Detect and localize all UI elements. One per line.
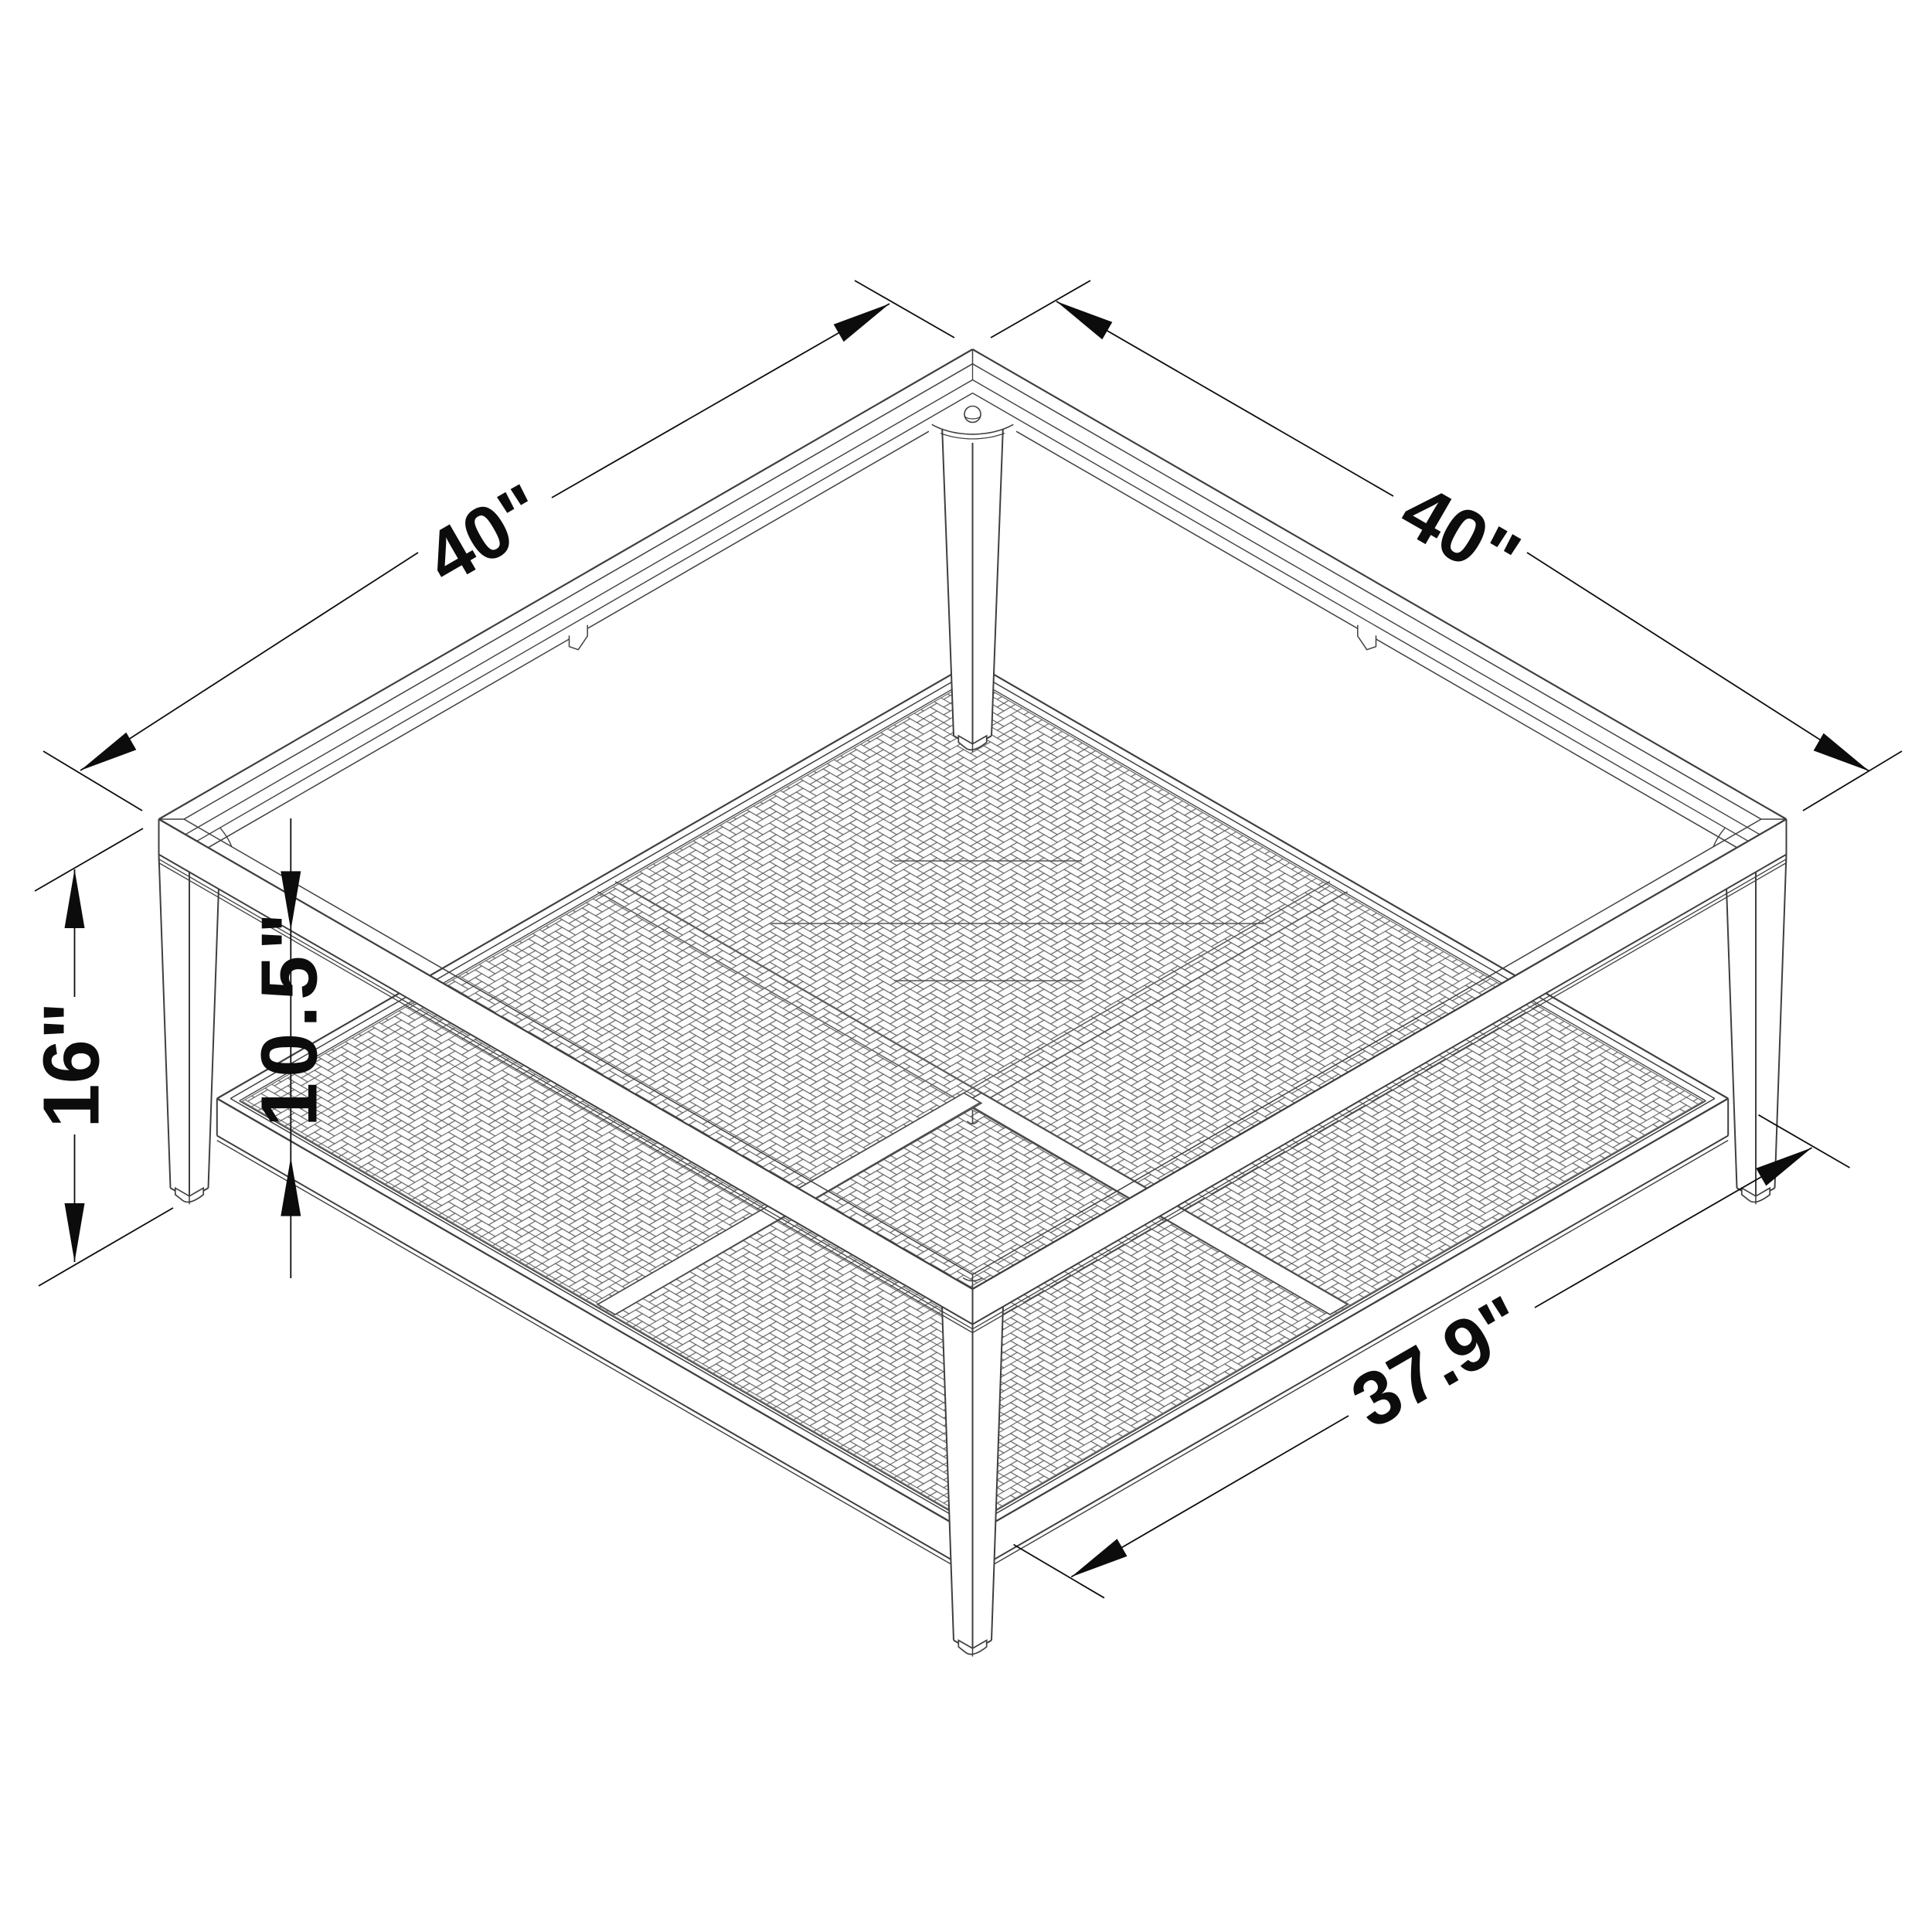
svg-text:16": 16": [27, 1002, 116, 1128]
svg-text:10.5": 10.5": [245, 907, 334, 1127]
